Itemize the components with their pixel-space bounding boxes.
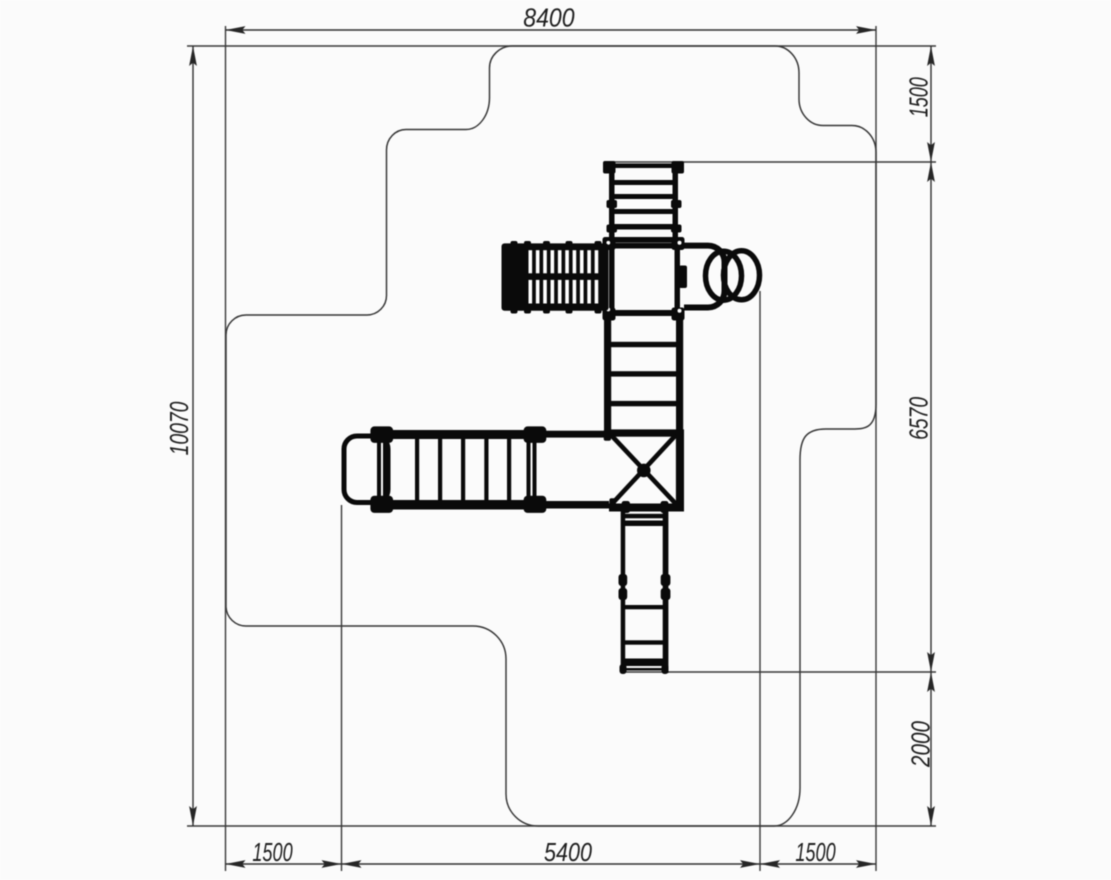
svg-text:5400: 5400 xyxy=(544,839,592,867)
svg-text:10070: 10070 xyxy=(165,401,193,455)
svg-text:1500: 1500 xyxy=(252,838,293,867)
svg-text:6570: 6570 xyxy=(905,397,933,440)
svg-text:1500: 1500 xyxy=(904,77,933,118)
svg-text:8400: 8400 xyxy=(523,4,575,32)
svg-text:2000: 2000 xyxy=(906,721,935,768)
svg-text:1500: 1500 xyxy=(795,838,836,867)
